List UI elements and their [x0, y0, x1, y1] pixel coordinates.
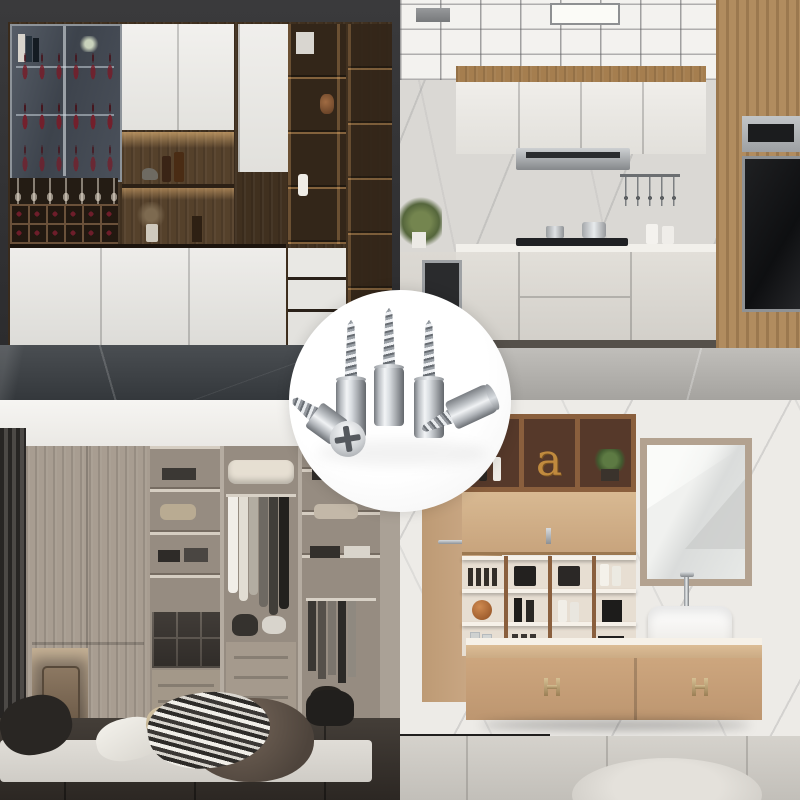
whiskey-bottle [174, 152, 184, 182]
cooking-pot [582, 222, 606, 238]
pump-bottle [600, 564, 609, 586]
stemware-rack [10, 178, 118, 204]
door-seam [518, 252, 520, 344]
hanging-pants [338, 601, 346, 683]
door-seam [630, 252, 632, 344]
counter-edge [466, 645, 762, 658]
handbag [232, 614, 258, 636]
white-vase [298, 174, 308, 196]
cooktop [516, 238, 628, 246]
garment [269, 497, 278, 615]
bronze-sculpture [320, 94, 334, 114]
hanging-pants [328, 601, 336, 675]
pump-bottle [612, 566, 621, 586]
vanity-shadow [480, 720, 750, 730]
garment [239, 497, 248, 601]
plant-pot [412, 232, 426, 248]
door-seam [100, 248, 102, 345]
dark-bottle [514, 598, 522, 622]
h-handle [544, 678, 560, 696]
ceiling-vent [416, 8, 450, 22]
wine-bottle-row [17, 50, 115, 84]
pillow-small [262, 616, 286, 634]
wine-bottle-row [17, 142, 115, 176]
decor-box [192, 216, 202, 242]
drawer [288, 280, 346, 312]
folded-stack [344, 546, 370, 558]
wood-fascia [456, 66, 706, 82]
dark-bottle [526, 600, 534, 622]
folded-stack [162, 468, 196, 480]
display-shelving-grid [288, 24, 346, 244]
h-handle [692, 678, 708, 696]
garment [259, 497, 268, 607]
spice-jars [468, 568, 498, 586]
ceiling-light-panel [550, 3, 620, 25]
upper-cabinet-doors [122, 24, 234, 130]
folded-stack [158, 550, 180, 562]
shelf-led-glow [122, 188, 234, 200]
hanging-utensils [620, 176, 680, 206]
drawer-seam [634, 658, 637, 720]
mirror-corner-reflection [685, 479, 745, 549]
product-inset-circle [289, 290, 511, 512]
black-jar [558, 566, 580, 586]
plant [593, 449, 627, 471]
upper-cabinets [456, 82, 706, 154]
built-in-oven [742, 156, 800, 312]
cubby-boxes [152, 612, 220, 668]
cubby-divider [575, 419, 580, 487]
collage-canvas: a [0, 0, 800, 800]
shelf-pin-upright-center [374, 308, 404, 426]
divider [220, 446, 224, 722]
storage-basket [160, 504, 196, 520]
folded-stack [184, 548, 208, 562]
drawer-seam [520, 296, 630, 298]
drawer-slot [234, 676, 288, 679]
door-seam [188, 248, 190, 345]
plant-pot [601, 469, 619, 481]
vanity-drawers [466, 658, 762, 720]
glass-wine-cabinet [10, 24, 122, 182]
vase [146, 224, 158, 242]
handbag [306, 690, 354, 726]
cubby-divider [519, 419, 524, 487]
pin-body [374, 368, 404, 426]
screw-thread [339, 320, 363, 378]
pillow [228, 460, 294, 484]
hood-vent-strip [526, 152, 620, 158]
garment [249, 497, 258, 595]
door-seam [177, 24, 179, 130]
drawer [288, 248, 346, 280]
black-box [602, 600, 622, 622]
utensil-rail [620, 174, 680, 177]
hanging-pants [308, 601, 316, 671]
canister [662, 226, 674, 244]
copper-ornament [472, 600, 492, 620]
garment [228, 497, 238, 593]
garment [279, 497, 289, 609]
drawer-slot [234, 656, 288, 659]
base-cabinets [456, 252, 716, 344]
wardrobe-doors [26, 446, 150, 722]
screw-thread [377, 308, 401, 366]
tall-cabinet-door [238, 24, 288, 172]
handle-groove [32, 642, 144, 645]
vanity-countertop [466, 638, 762, 645]
whiskey-bottle [162, 156, 171, 182]
door-seam [642, 82, 644, 154]
bottle [493, 457, 501, 481]
hanging-pants [348, 601, 356, 677]
drawer-slot [158, 684, 214, 687]
wine-cubby-grid [10, 204, 118, 244]
appliance-glass [748, 124, 794, 142]
folded-stack [310, 546, 340, 558]
wood-appliance-column [716, 0, 800, 400]
screw-thread [417, 320, 441, 378]
base-cabinet-doors [10, 248, 286, 345]
storage-basket [314, 504, 358, 519]
wine-bottle-row [17, 100, 115, 134]
range-hood [516, 148, 630, 170]
door-seam [518, 82, 520, 154]
cooking-pot [546, 226, 564, 238]
pump-bottle [570, 602, 579, 622]
cabinet-handle [546, 528, 551, 544]
hanging-pants [318, 601, 326, 679]
built-in-microwave [742, 116, 800, 152]
open-bar-shelf [122, 132, 234, 244]
shelf-led-glow [122, 132, 234, 148]
curtain [0, 428, 26, 742]
mirror [640, 438, 752, 586]
black-jar [514, 566, 536, 586]
door-seam [580, 82, 582, 154]
bird-figurine [142, 168, 158, 180]
flap-cabinet [462, 492, 636, 555]
faucet-spout [680, 572, 694, 577]
art-print [296, 32, 314, 54]
canister [646, 224, 658, 244]
pump-bottle [558, 600, 567, 622]
shelf-bay [150, 446, 220, 616]
letter-decor: a [529, 439, 569, 485]
